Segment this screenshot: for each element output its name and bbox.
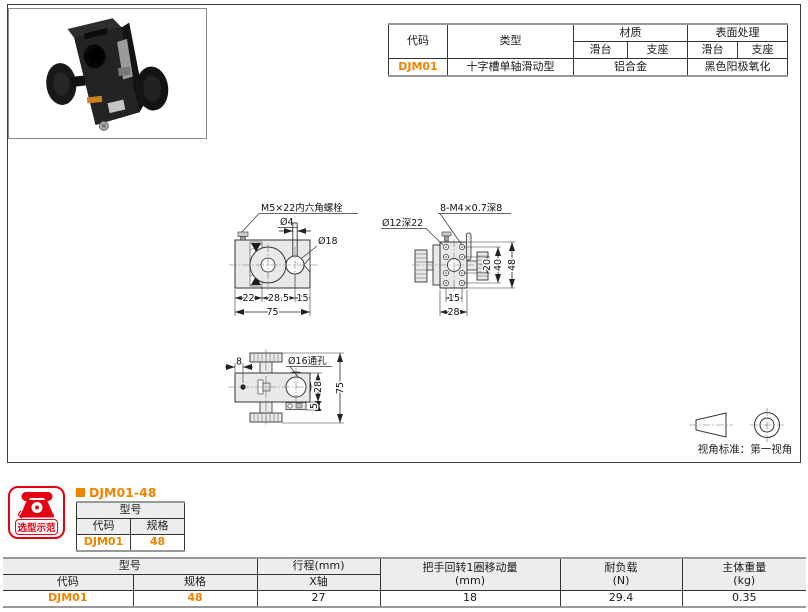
- bottom-header-load-line1: 耐负载: [561, 562, 682, 575]
- selection-code-value: DJM01: [77, 535, 131, 552]
- spec-subheader-base2: 支座: [738, 42, 788, 59]
- badge-label: 选型示范: [15, 519, 57, 535]
- spec-header-code: 代码: [389, 24, 448, 59]
- bottom-header-weight: 主体重量 (kg): [682, 558, 806, 591]
- spec-code-value: DJM01: [389, 59, 448, 77]
- specification-table: 型号 行程(mm) 把手回转1圈移动量 (mm) 耐负载 (N) 主体重量 (k…: [3, 557, 806, 608]
- selection-header-code: 代码: [77, 519, 131, 535]
- top-dim-75: 75: [335, 382, 346, 394]
- front-dim-15: 15: [296, 293, 308, 304]
- top-dim-28: 28: [313, 381, 324, 393]
- front-dim-22: 22: [242, 293, 254, 304]
- top-dia16-label: Ø16通孔: [288, 356, 327, 367]
- selection-spec-value: 48: [131, 535, 185, 552]
- bottom-handle-value: 18: [380, 591, 560, 608]
- front-view-geometry: [229, 223, 318, 290]
- selection-header-spec: 规格: [131, 519, 185, 535]
- side-dim-15: 15: [448, 293, 460, 304]
- top-dim-8: 8: [236, 357, 242, 368]
- selection-header-model: 型号: [77, 502, 185, 519]
- bottom-header-x-axis: X轴: [257, 575, 380, 591]
- side-dim-48: 48: [507, 259, 518, 271]
- bottom-stroke-value: 27: [257, 591, 380, 608]
- table-row: DJM01 48 27 18 29.4 0.35: [3, 591, 806, 608]
- spec-subheader-slide2: 滑台: [688, 42, 738, 59]
- phone-icon: [17, 490, 57, 519]
- square-bullet-icon: [76, 488, 85, 497]
- side-dim-40: 40: [493, 259, 504, 271]
- side-dim-28: 28: [447, 307, 459, 318]
- bottom-header-weight-line1: 主体重量: [683, 562, 807, 575]
- spec-subheader-base: 支座: [628, 42, 688, 59]
- bottom-header-handle-unit: (mm): [381, 575, 560, 588]
- spec-surface-value: 黑色阳极氧化: [688, 59, 788, 77]
- spec-header-material: 材质: [574, 24, 688, 42]
- bottom-header-stroke: 行程(mm): [257, 558, 380, 575]
- bottom-header-code: 代码: [3, 575, 133, 591]
- product-photo-box: [8, 8, 207, 139]
- bottom-header-model: 型号: [3, 558, 257, 575]
- bottom-load-value: 29.4: [560, 591, 682, 608]
- catalog-page: 代码 类型 材质 表面处理 滑台 支座 滑台 支座 DJM01 十字槽单轴滑动型…: [0, 0, 808, 612]
- side-dia12-label: Ø12深22: [382, 218, 423, 229]
- bottom-code-value: DJM01: [3, 591, 133, 608]
- spec-table: 代码 类型 材质 表面处理 滑台 支座 滑台 支座 DJM01 十字槽单轴滑动型…: [388, 23, 788, 77]
- product-photo: [9, 9, 206, 138]
- bottom-header-load-unit: (N): [561, 575, 682, 588]
- front-dim-75: 75: [266, 307, 278, 318]
- spec-header-surface: 表面处理: [688, 24, 788, 42]
- spec-material-value: 铝合金: [574, 59, 688, 77]
- selection-title: DJM01-48: [76, 485, 156, 500]
- front-dia18-label: Ø18: [318, 236, 338, 247]
- spec-subheader-slide: 滑台: [574, 42, 628, 59]
- spec-header-type: 类型: [448, 24, 574, 59]
- side-dim-20: 20: [482, 259, 493, 271]
- bottom-header-load: 耐负载 (N): [560, 558, 682, 591]
- bottom-header-weight-unit: (kg): [683, 575, 807, 588]
- selection-table: 型号 代码 规格 DJM01 48: [76, 501, 185, 552]
- front-dia4-label: Ø4: [280, 217, 294, 228]
- circle-view-icon: [750, 408, 784, 442]
- bottom-weight-value: 0.35: [682, 591, 806, 608]
- drawing-side-view: 8-M4×0.7深8 Ø12深22 20 40 48 15 2: [380, 195, 545, 335]
- bottom-header-handle-line1: 把手回转1圈移动量: [381, 562, 560, 575]
- front-dim-28-5: 28.5: [268, 293, 289, 304]
- side-holes-label: 8-M4×0.7深8: [440, 203, 502, 214]
- product-photo-render: [40, 13, 172, 136]
- bottom-header-spec: 规格: [133, 575, 257, 591]
- bottom-header-handle: 把手回转1圈移动量 (mm): [380, 558, 560, 591]
- bottom-spec-value: 48: [133, 591, 257, 608]
- view-standard-note: 视角标准：第一视角: [698, 443, 793, 456]
- selection-title-text: DJM01-48: [89, 485, 156, 500]
- front-bolt-label: M5×22内六角螺栓: [261, 202, 343, 214]
- drawing-top-view: 8 Ø16通孔 28 5 75: [220, 340, 370, 440]
- projection-symbol: 视角标准：第一视角: [688, 407, 802, 455]
- top-dim-5: 5: [309, 403, 320, 409]
- spec-type-value: 十字槽单轴滑动型: [448, 59, 574, 77]
- selection-example-badge: 选型示范: [8, 486, 65, 539]
